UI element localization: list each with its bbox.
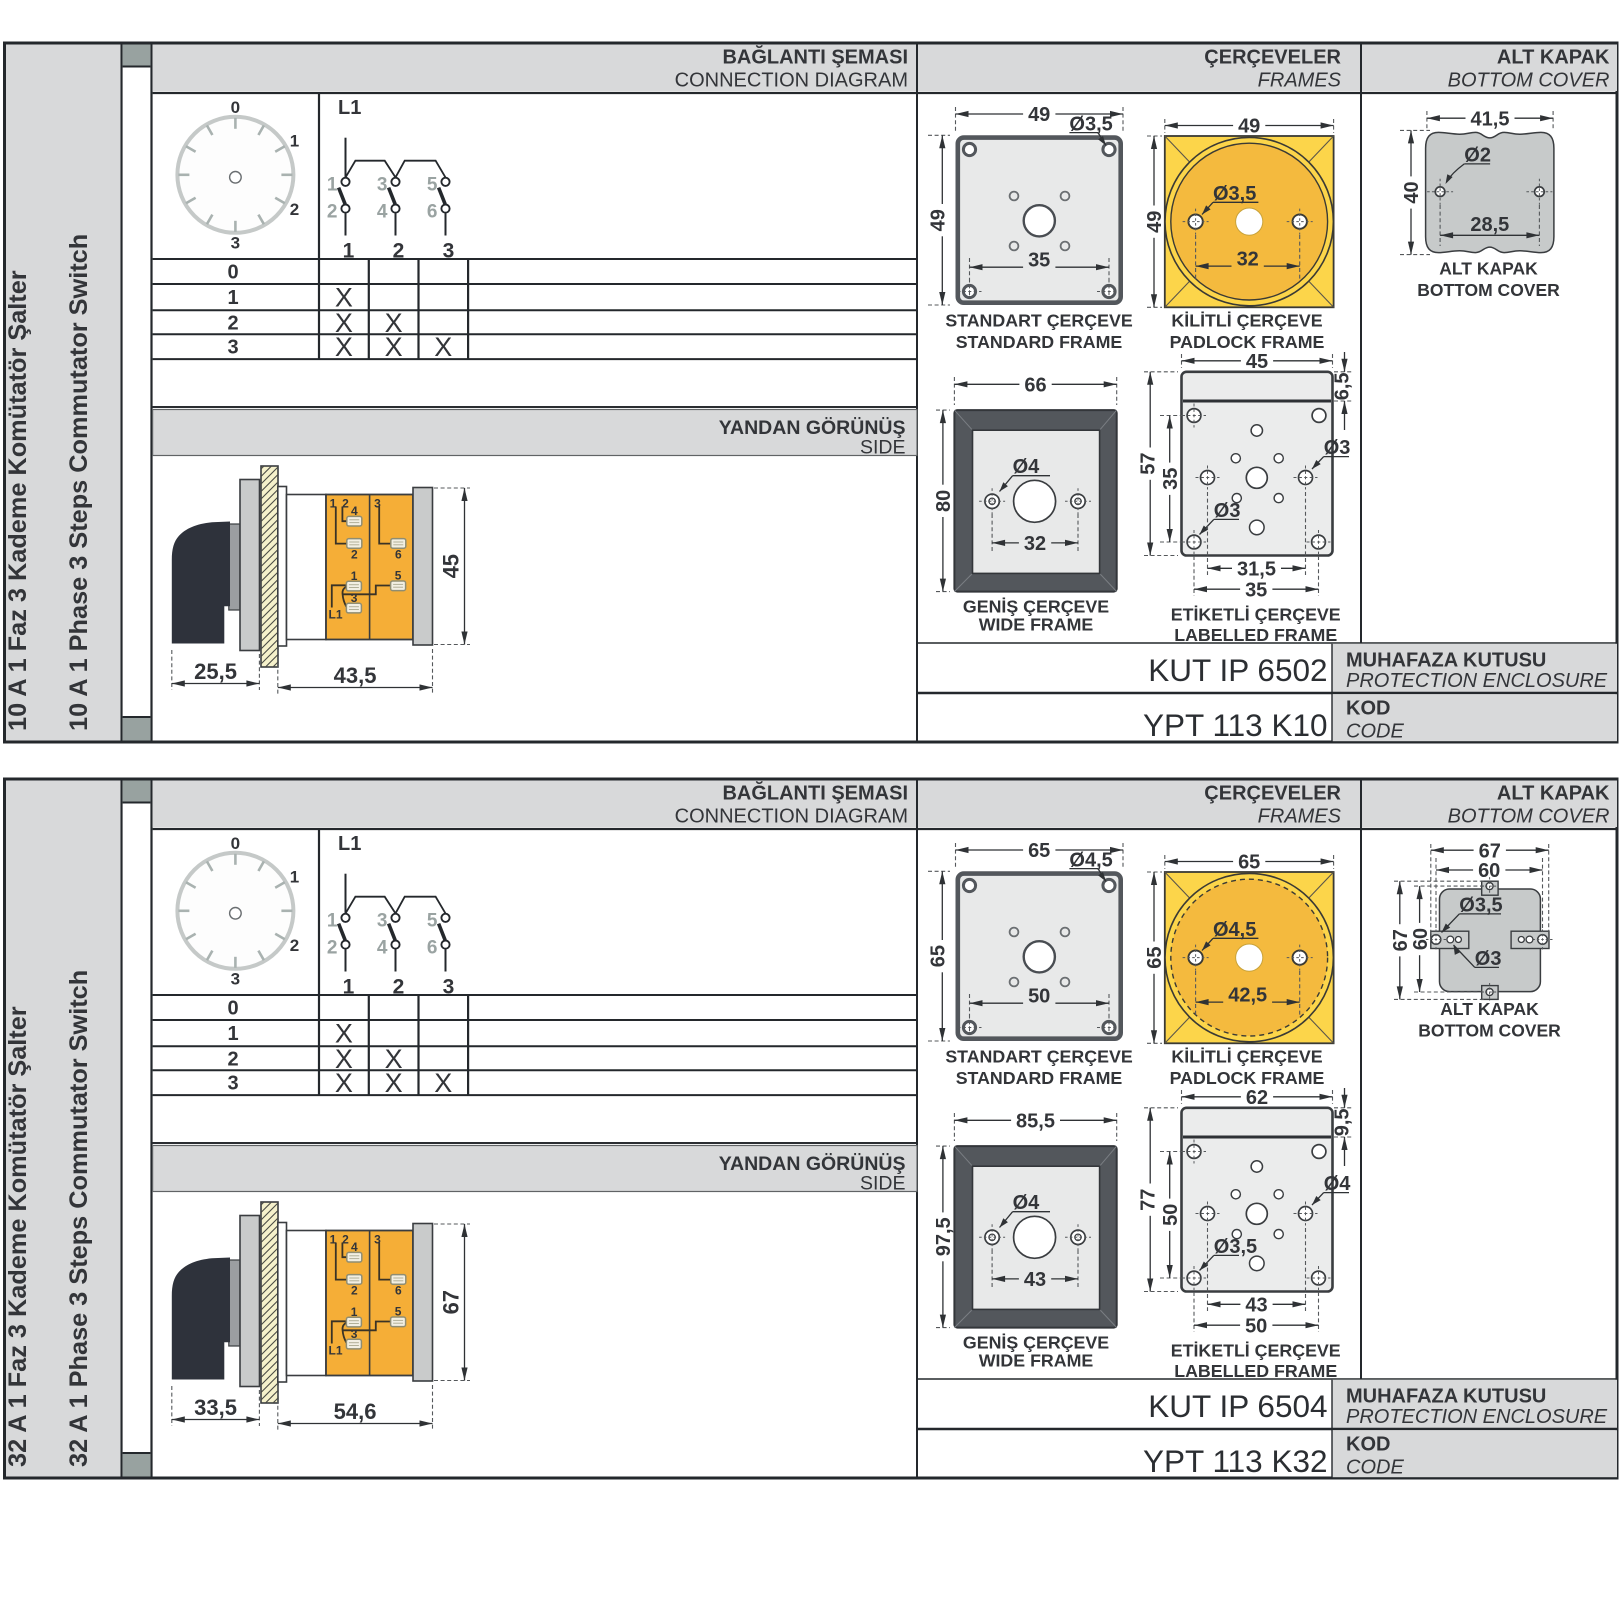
svg-text:STANDART ÇERÇEVE: STANDART ÇERÇEVE: [945, 1047, 1133, 1067]
svg-text:35: 35: [1245, 579, 1267, 601]
svg-text:49: 49: [1144, 211, 1166, 233]
svg-text:97,5: 97,5: [933, 1217, 955, 1256]
svg-text:6: 6: [427, 938, 438, 959]
svg-text:3: 3: [377, 911, 388, 932]
svg-text:77: 77: [1137, 1189, 1159, 1211]
svg-text:ÇERÇEVELER: ÇERÇEVELER: [1204, 47, 1341, 69]
svg-text:KOD: KOD: [1346, 1434, 1390, 1456]
svg-text:2: 2: [290, 200, 299, 219]
svg-text:50: 50: [1245, 1315, 1267, 1337]
svg-text:X: X: [434, 1068, 452, 1098]
svg-text:PROTECTION ENCLOSURE: PROTECTION ENCLOSURE: [1346, 1406, 1608, 1428]
svg-text:STANDARD FRAME: STANDARD FRAME: [956, 1068, 1123, 1088]
svg-text:KUT IP 6504: KUT IP 6504: [1148, 1388, 1327, 1424]
svg-text:L1: L1: [338, 97, 361, 119]
svg-text:L1: L1: [329, 1344, 343, 1358]
svg-text:1: 1: [327, 911, 338, 932]
svg-text:49: 49: [1028, 104, 1050, 126]
svg-text:Ø3: Ø3: [1324, 437, 1351, 459]
svg-text:SIDE: SIDE: [860, 437, 906, 459]
svg-text:ÇERÇEVELER: ÇERÇEVELER: [1204, 783, 1341, 805]
svg-text:ETİKETLİ ÇERÇEVE: ETİKETLİ ÇERÇEVE: [1171, 605, 1341, 625]
svg-text:ALT KAPAK: ALT KAPAK: [1440, 999, 1539, 1019]
svg-text:Ø3: Ø3: [1475, 948, 1502, 970]
svg-text:67: 67: [1479, 840, 1501, 862]
svg-text:ALT KAPAK: ALT KAPAK: [1497, 783, 1610, 805]
svg-text:32 A 1 Phase 3 Steps Commutato: 32 A 1 Phase 3 Steps Commutator Switch: [65, 970, 93, 1467]
svg-text:BOTTOM COVER: BOTTOM COVER: [1448, 70, 1610, 92]
svg-text:L1: L1: [338, 833, 361, 855]
svg-text:YPT 113 K32: YPT 113 K32: [1143, 1443, 1327, 1479]
svg-text:BAĞLANTI ŞEMASI: BAĞLANTI ŞEMASI: [722, 45, 908, 69]
svg-text:4: 4: [377, 938, 388, 959]
svg-text:FRAMES: FRAMES: [1258, 70, 1342, 92]
svg-text:60: 60: [1478, 860, 1500, 882]
svg-text:2: 2: [342, 497, 349, 511]
svg-text:CODE: CODE: [1346, 1457, 1404, 1479]
svg-text:BOTTOM COVER: BOTTOM COVER: [1418, 1021, 1561, 1041]
svg-text:Ø4,5: Ø4,5: [1213, 919, 1256, 941]
svg-text:54,6: 54,6: [334, 1399, 377, 1424]
svg-text:1: 1: [351, 1305, 358, 1319]
svg-text:49: 49: [928, 209, 950, 231]
svg-text:WIDE FRAME: WIDE FRAME: [979, 615, 1094, 635]
svg-text:Ø4: Ø4: [1013, 1192, 1041, 1214]
svg-text:FRAMES: FRAMES: [1258, 806, 1342, 828]
svg-text:PADLOCK FRAME: PADLOCK FRAME: [1170, 1068, 1325, 1088]
svg-text:25,5: 25,5: [194, 659, 237, 684]
svg-text:6: 6: [427, 202, 438, 223]
svg-text:41,5: 41,5: [1471, 108, 1510, 130]
svg-text:49: 49: [1238, 116, 1260, 138]
svg-text:10 A 1 Faz 3 Kademe Komütatör: 10 A 1 Faz 3 Kademe Komütatör Şalter: [4, 270, 32, 731]
svg-text:GENİŞ ÇERÇEVE: GENİŞ ÇERÇEVE: [963, 597, 1109, 617]
svg-text:2: 2: [351, 548, 358, 562]
svg-text:1: 1: [290, 868, 299, 887]
svg-text:0: 0: [231, 834, 240, 853]
svg-text:5: 5: [395, 1305, 402, 1319]
svg-text:GENİŞ ÇERÇEVE: GENİŞ ÇERÇEVE: [963, 1333, 1109, 1353]
svg-text:CODE: CODE: [1346, 721, 1404, 743]
svg-text:4: 4: [351, 504, 358, 518]
svg-text:MUHAFAZA KUTUSU: MUHAFAZA KUTUSU: [1346, 650, 1546, 672]
svg-text:KİLİTLİ ÇERÇEVE: KİLİTLİ ÇERÇEVE: [1171, 1047, 1322, 1067]
svg-text:50: 50: [1028, 986, 1050, 1008]
svg-text:65: 65: [1028, 840, 1050, 862]
svg-text:STANDARD FRAME: STANDARD FRAME: [956, 332, 1123, 352]
svg-text:KUT IP 6502: KUT IP 6502: [1148, 652, 1327, 688]
svg-text:KİLİTLİ ÇERÇEVE: KİLİTLİ ÇERÇEVE: [1171, 311, 1322, 331]
svg-text:43,5: 43,5: [334, 663, 377, 688]
svg-text:PROTECTION ENCLOSURE: PROTECTION ENCLOSURE: [1346, 670, 1608, 692]
svg-text:3: 3: [231, 970, 240, 989]
svg-text:40: 40: [1401, 181, 1423, 203]
svg-text:32: 32: [1237, 249, 1259, 271]
svg-text:BOTTOM COVER: BOTTOM COVER: [1417, 280, 1560, 300]
svg-text:31,5: 31,5: [1237, 559, 1276, 581]
svg-text:ETİKETLİ ÇERÇEVE: ETİKETLİ ÇERÇEVE: [1171, 1341, 1341, 1361]
svg-text:X: X: [385, 332, 403, 362]
svg-text:43: 43: [1245, 1295, 1267, 1317]
svg-text:X: X: [434, 332, 452, 362]
svg-text:32 A 1 Faz 3 Kademe Komütatör: 32 A 1 Faz 3 Kademe Komütatör Şalter: [4, 1006, 32, 1467]
svg-text:STANDART ÇERÇEVE: STANDART ÇERÇEVE: [945, 311, 1133, 331]
svg-text:57: 57: [1137, 452, 1159, 474]
svg-text:L1: L1: [329, 608, 343, 622]
svg-text:MUHAFAZA KUTUSU: MUHAFAZA KUTUSU: [1346, 1386, 1546, 1408]
svg-text:5: 5: [427, 911, 438, 932]
svg-text:2: 2: [327, 202, 338, 223]
svg-text:BAĞLANTI ŞEMASI: BAĞLANTI ŞEMASI: [722, 781, 908, 805]
svg-text:35: 35: [1028, 250, 1050, 272]
svg-text:35: 35: [1160, 468, 1182, 490]
svg-text:1: 1: [227, 1023, 238, 1045]
svg-text:YPT 113 K10: YPT 113 K10: [1143, 707, 1327, 743]
svg-text:6: 6: [395, 1284, 402, 1298]
svg-text:0: 0: [227, 262, 238, 284]
svg-text:5: 5: [395, 569, 402, 583]
svg-text:2: 2: [227, 312, 238, 334]
svg-text:Ø2: Ø2: [1464, 144, 1491, 166]
svg-text:28,5: 28,5: [1470, 214, 1509, 236]
svg-text:Ø3: Ø3: [1214, 500, 1241, 522]
svg-text:Ø3,5: Ø3,5: [1459, 894, 1502, 916]
svg-text:3: 3: [374, 497, 381, 511]
svg-text:5: 5: [427, 175, 438, 196]
svg-text:ALT KAPAK: ALT KAPAK: [1497, 47, 1610, 69]
svg-text:X: X: [385, 1068, 403, 1098]
svg-text:67: 67: [1390, 929, 1412, 951]
svg-text:X: X: [335, 332, 353, 362]
svg-text:SIDE: SIDE: [860, 1173, 906, 1195]
svg-text:0: 0: [227, 998, 238, 1020]
svg-text:3: 3: [351, 591, 358, 605]
svg-text:1: 1: [327, 175, 338, 196]
svg-text:2: 2: [227, 1048, 238, 1070]
svg-text:PADLOCK FRAME: PADLOCK FRAME: [1170, 332, 1325, 352]
svg-text:1: 1: [330, 497, 337, 511]
svg-text:3: 3: [351, 1327, 358, 1341]
svg-text:3: 3: [227, 1073, 238, 1095]
svg-text:X: X: [335, 1068, 353, 1098]
svg-text:65: 65: [1144, 946, 1166, 968]
svg-text:6: 6: [395, 548, 402, 562]
svg-text:KOD: KOD: [1346, 698, 1390, 720]
svg-text:2: 2: [342, 1233, 349, 1247]
svg-text:2: 2: [351, 1284, 358, 1298]
svg-text:32: 32: [1024, 533, 1046, 555]
svg-text:0: 0: [231, 98, 240, 117]
svg-text:6,5: 6,5: [1332, 372, 1354, 400]
svg-text:Ø3,5: Ø3,5: [1213, 183, 1256, 205]
svg-text:85,5: 85,5: [1016, 1111, 1055, 1133]
svg-text:LABELLED FRAME: LABELLED FRAME: [1174, 1361, 1337, 1381]
svg-text:66: 66: [1024, 375, 1046, 397]
svg-text:80: 80: [933, 490, 955, 512]
svg-text:CONNECTION DIAGRAM: CONNECTION DIAGRAM: [675, 70, 908, 92]
svg-text:CONNECTION DIAGRAM: CONNECTION DIAGRAM: [675, 806, 908, 828]
svg-text:50: 50: [1160, 1204, 1182, 1226]
svg-text:3: 3: [227, 337, 238, 359]
svg-text:33,5: 33,5: [194, 1395, 237, 1420]
svg-text:Ø4: Ø4: [1013, 456, 1041, 478]
svg-text:1: 1: [227, 287, 238, 309]
svg-text:2: 2: [327, 938, 338, 959]
svg-text:4: 4: [351, 1240, 358, 1254]
svg-text:4: 4: [377, 202, 388, 223]
svg-text:9,5: 9,5: [1332, 1108, 1354, 1136]
svg-text:3: 3: [377, 175, 388, 196]
svg-text:1: 1: [290, 132, 299, 151]
svg-text:3: 3: [231, 234, 240, 253]
svg-text:60: 60: [1410, 928, 1432, 950]
svg-text:1: 1: [330, 1233, 337, 1247]
svg-text:Ø4: Ø4: [1324, 1173, 1352, 1195]
svg-text:10 A 1 Phase 3 Steps Commutato: 10 A 1 Phase 3 Steps Commutator Switch: [65, 234, 93, 731]
svg-text:ALT KAPAK: ALT KAPAK: [1439, 259, 1538, 279]
svg-text:WIDE FRAME: WIDE FRAME: [979, 1351, 1094, 1371]
svg-text:BOTTOM COVER: BOTTOM COVER: [1448, 806, 1610, 828]
svg-text:LABELLED FRAME: LABELLED FRAME: [1174, 625, 1337, 645]
svg-text:1: 1: [351, 569, 358, 583]
svg-text:43: 43: [1024, 1269, 1046, 1291]
svg-text:Ø3,5: Ø3,5: [1214, 1236, 1257, 1258]
svg-text:65: 65: [928, 945, 950, 967]
svg-text:42,5: 42,5: [1228, 985, 1267, 1007]
svg-text:45: 45: [1246, 351, 1268, 373]
svg-text:65: 65: [1238, 852, 1260, 874]
svg-text:45: 45: [439, 554, 464, 578]
svg-text:2: 2: [290, 936, 299, 955]
svg-text:62: 62: [1246, 1087, 1268, 1109]
svg-text:67: 67: [439, 1290, 464, 1314]
svg-text:3: 3: [374, 1233, 381, 1247]
